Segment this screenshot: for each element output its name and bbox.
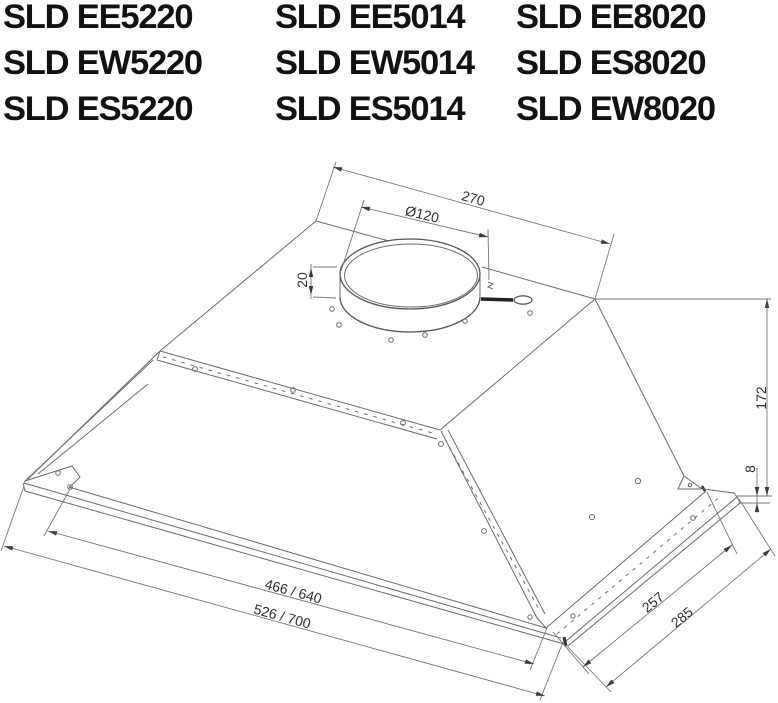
svg-text:Ø120: Ø120: [404, 202, 441, 226]
svg-text:8: 8: [742, 465, 758, 473]
svg-text:257: 257: [639, 588, 667, 615]
svg-text:270: 270: [460, 187, 487, 209]
svg-text:20: 20: [294, 272, 310, 288]
svg-text:SLD ES5014: SLD ES5014: [275, 90, 465, 128]
svg-text:SLD EE8020: SLD EE8020: [516, 0, 705, 36]
svg-text:SLD EW5014: SLD EW5014: [275, 44, 475, 82]
svg-text:466 / 640: 466 / 640: [263, 576, 324, 607]
svg-text:SLD ES8020: SLD ES8020: [516, 44, 705, 82]
svg-text:526 / 700: 526 / 700: [252, 601, 313, 632]
svg-text:SLD ES5220: SLD ES5220: [3, 90, 192, 128]
svg-text:SLD EW5220: SLD EW5220: [3, 44, 202, 82]
svg-text:SLD EE5220: SLD EE5220: [3, 0, 192, 36]
svg-text:SLD EW8020: SLD EW8020: [516, 90, 715, 128]
svg-text:172: 172: [753, 386, 769, 410]
svg-text:SLD EE5014: SLD EE5014: [275, 0, 465, 36]
svg-text:285: 285: [668, 603, 696, 630]
